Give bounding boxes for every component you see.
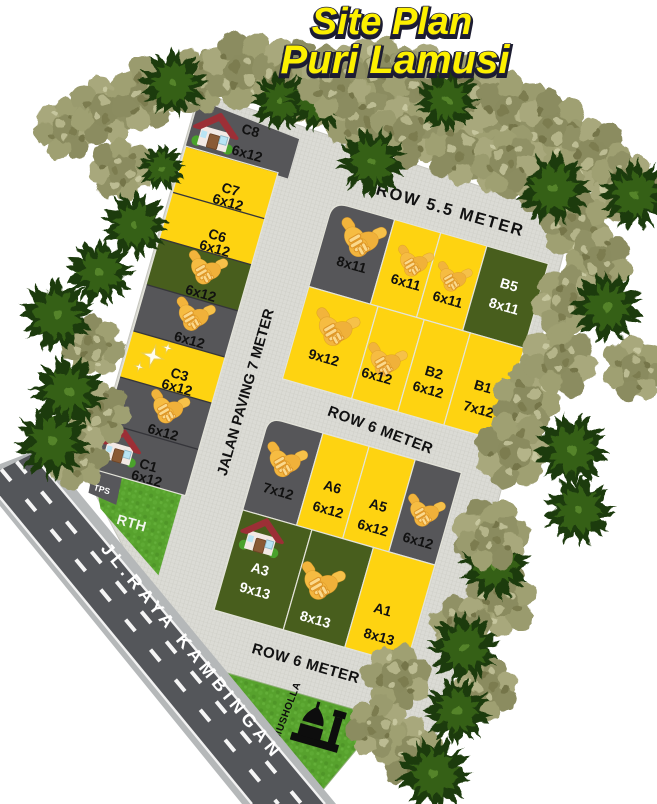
svg-text:Puri Lamusi: Puri Lamusi — [281, 38, 511, 82]
svg-text:Site Plan: Site Plan — [312, 1, 473, 43]
